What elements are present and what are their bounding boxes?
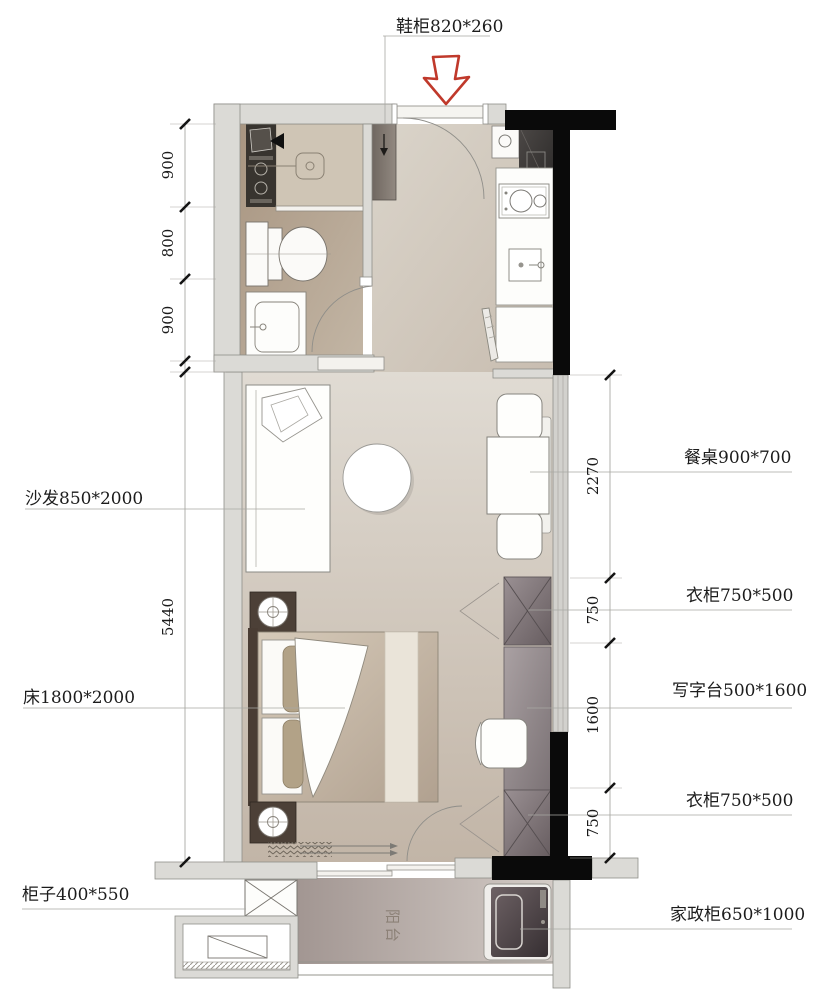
dining-chair-top [497,394,542,440]
wall-top-stub [487,104,506,124]
headboard [248,628,258,806]
wall-balcony-jamb [455,858,492,878]
label-wardrobe-top: 衣柜750*500 [686,587,793,606]
label-wardrobe-bottom: 衣柜750*500 [686,792,793,811]
cooktop [499,184,549,218]
dim-right-1600: 1600 [584,696,602,734]
window-wall [553,375,568,732]
shower-glass [276,206,367,211]
wall-left-lower [224,372,242,862]
label-balcony: 阳台 [383,909,404,945]
label-cabinet: 柜子400*550 [22,886,129,905]
black-wall-bottom [492,856,592,880]
dim-right-750a: 750 [584,596,602,625]
sliding-door-panel-1 [317,871,392,876]
door-jamb [392,104,397,124]
dim-left-900a: 900 [159,151,177,180]
dim-right-2270: 2270 [584,457,602,495]
wall-left-upper [214,104,240,372]
water-heater [492,126,519,158]
wall-stub-right [592,858,638,878]
wall-bathroom-east [363,124,372,285]
wall-top-left [214,104,395,124]
dim-right-750b: 750 [584,809,602,838]
black-wall-right-lower [550,732,568,860]
entry-door-leaf [397,106,483,118]
bed-runner [385,632,418,802]
desk-chair [481,719,527,768]
wall-bedroom-south [155,862,317,879]
label-dining-table: 餐桌900*700 [684,449,791,468]
label-sofa: 沙发850*2000 [25,490,143,509]
door-jamb [483,104,488,124]
bathroom-sliding-door [318,357,384,370]
dim-left-5440: 5440 [159,598,177,636]
dim-left-800: 800 [159,229,177,258]
label-desk: 写字台500*1600 [672,682,807,701]
shower-head [296,153,324,179]
dining-chair-bottom [497,512,542,559]
lower-cabinet [496,307,553,362]
dim-left-900b: 900 [159,306,177,335]
label-housekeeping: 家政柜650*1000 [670,906,805,925]
label-shoe-cabinet: 鞋柜820*260 [396,18,503,37]
annex [175,880,298,978]
foot-mat [268,842,332,857]
label-bed: 床1800*2000 [23,689,135,708]
floor-plan: 鞋柜820*260 餐桌900*700 衣柜750*500 写字台500*160… [0,0,829,1000]
coffee-table [343,444,411,512]
black-wall-right-upper [553,130,570,375]
entrance-arrow-icon [424,56,469,104]
black-wall-top [505,110,616,130]
sink-basin [255,302,299,352]
sliding-door-panel-2 [387,865,457,870]
wall-balcony-east [553,880,570,988]
dining-table [487,437,549,514]
